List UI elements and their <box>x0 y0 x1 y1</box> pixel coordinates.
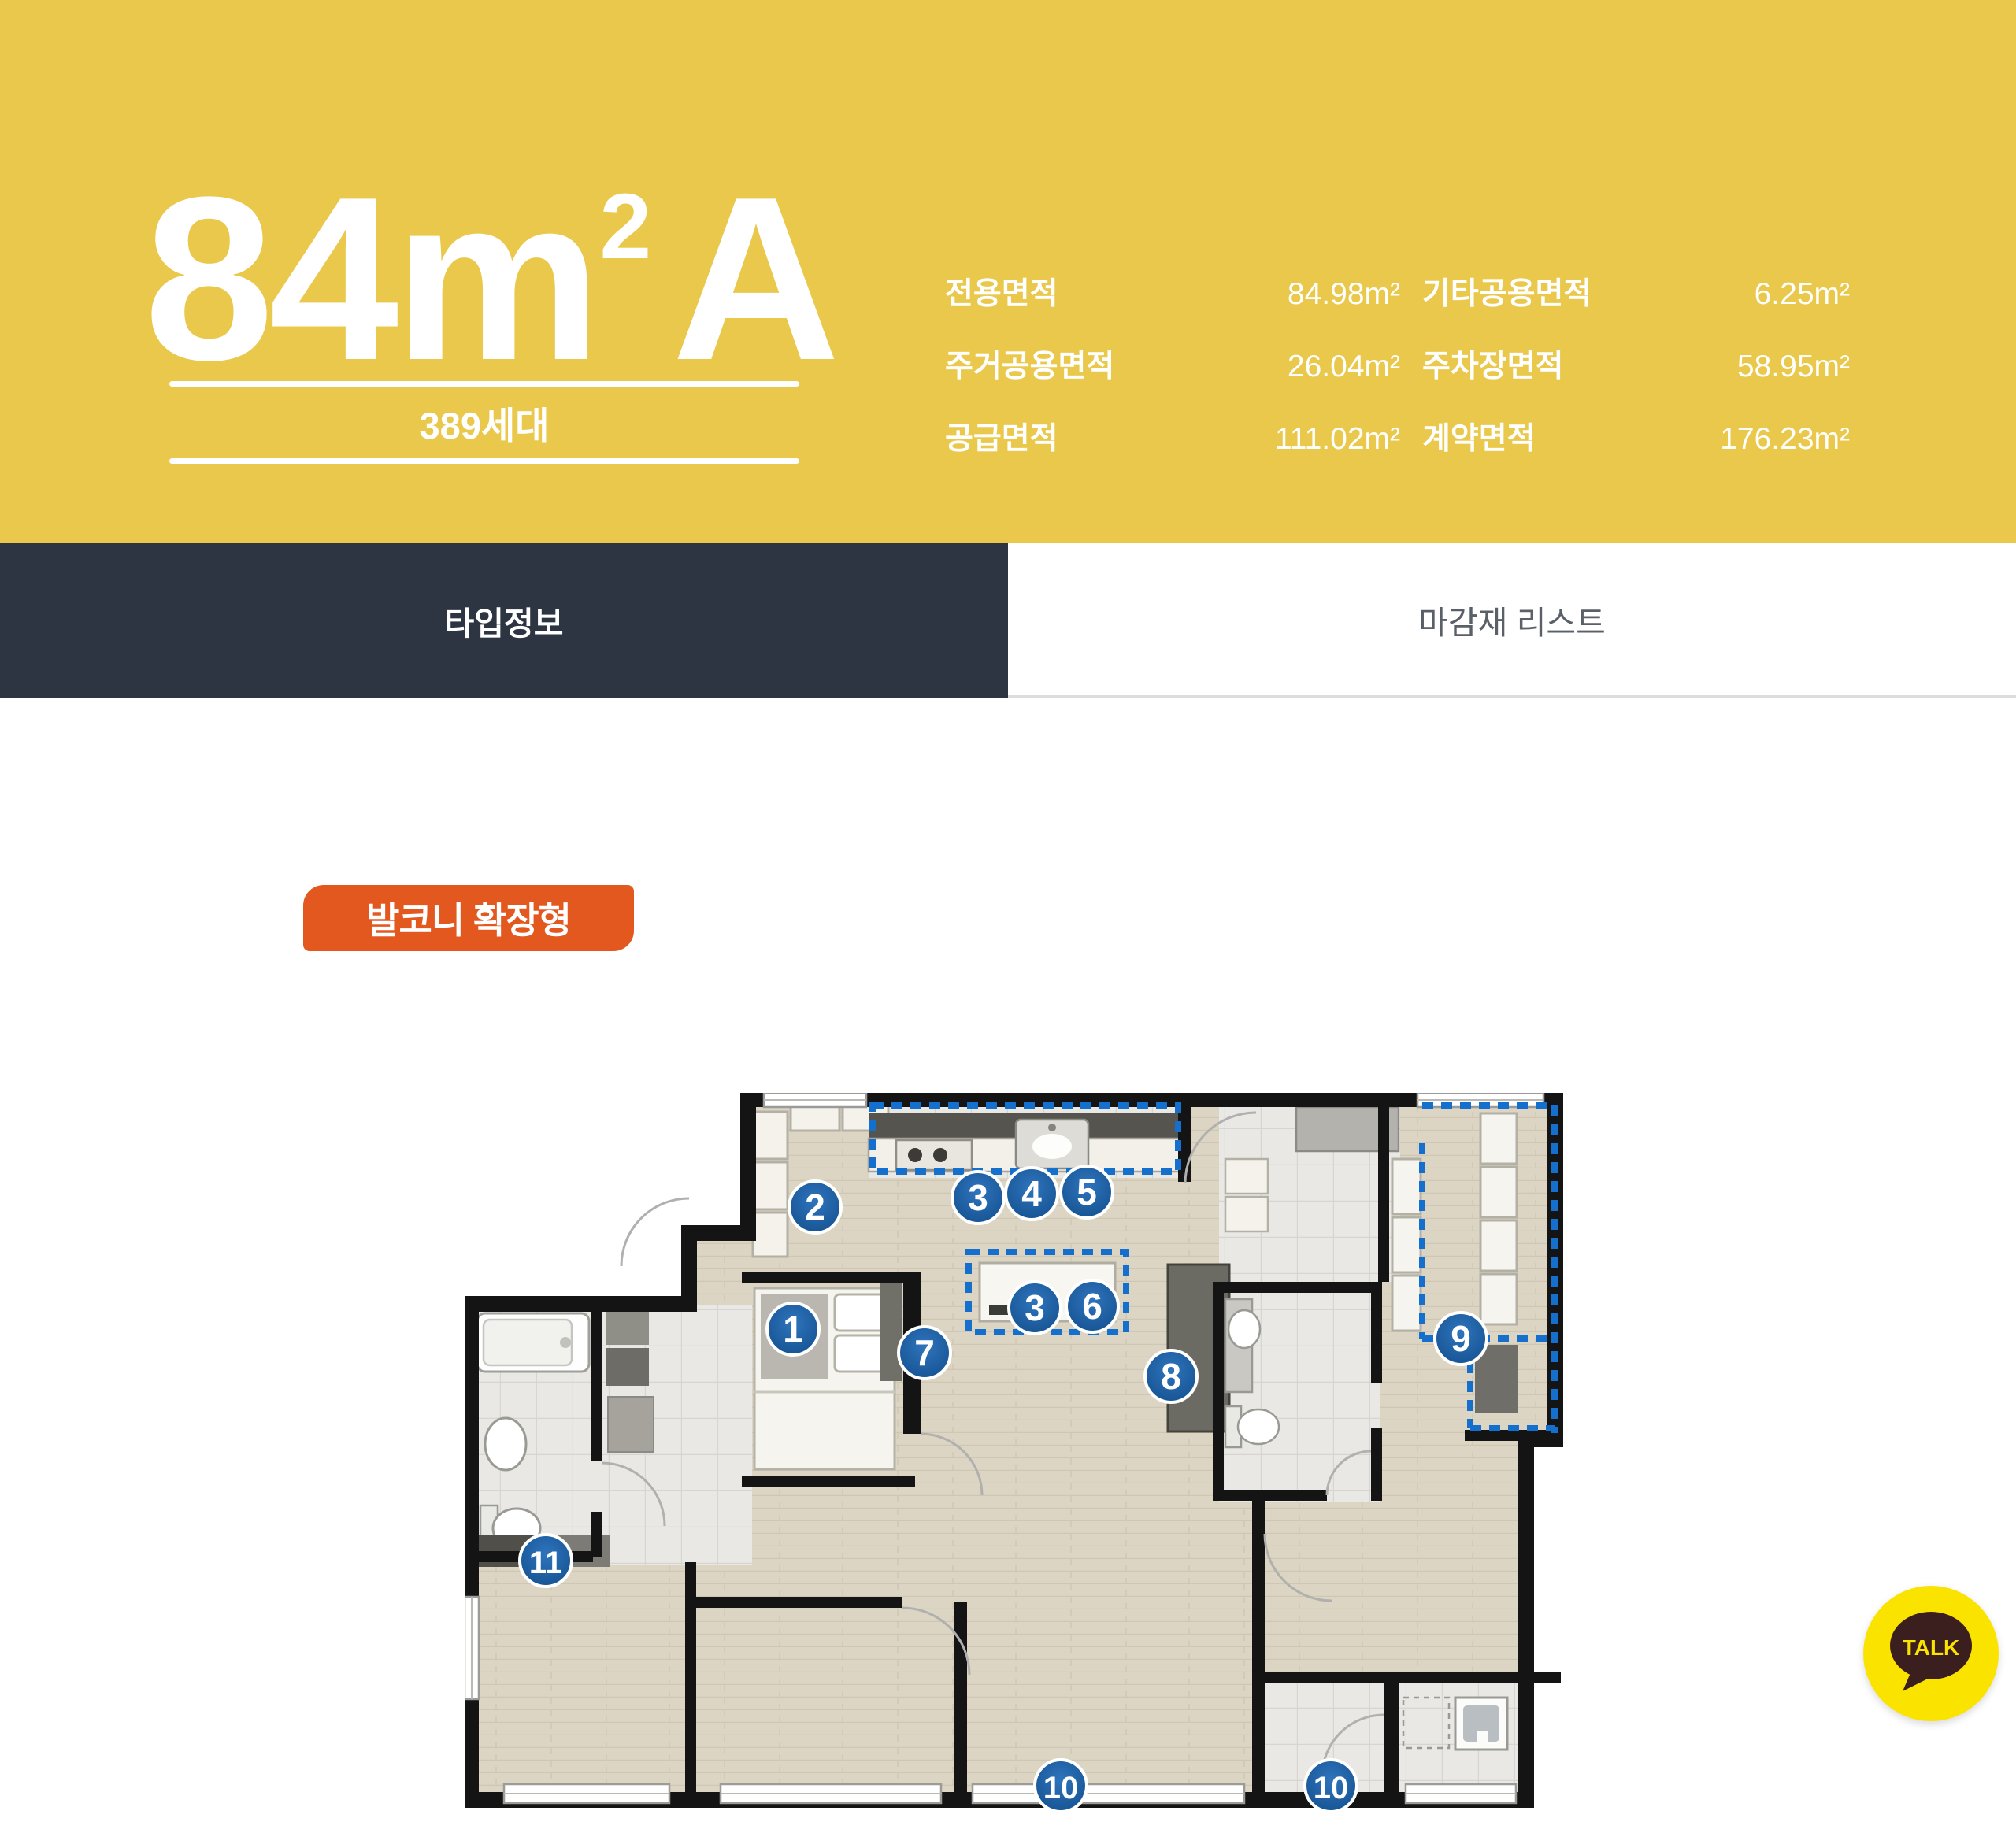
svg-text:1: 1 <box>783 1309 803 1350</box>
svg-text:2: 2 <box>805 1187 825 1228</box>
area-label: 기타공용면적 <box>1422 277 1619 312</box>
floorplan-marker-6: 6 <box>1066 1280 1118 1332</box>
tab-bar: 타입정보 마감재 리스트 <box>0 543 2016 698</box>
svg-text:10: 10 <box>1314 1771 1349 1805</box>
svg-text:7: 7 <box>914 1332 935 1373</box>
floorplan-marker-11: 11 <box>520 1535 572 1587</box>
area-label: 주차장면적 <box>1422 350 1619 384</box>
floorplan-marker-4: 4 <box>1006 1168 1058 1220</box>
floorplan-marker-1: 1 <box>767 1303 819 1355</box>
type-title-suffix: A <box>672 148 840 409</box>
floorplan-marker-10: 10 <box>1035 1760 1087 1812</box>
tab-finish-list[interactable]: 마감재 리스트 <box>1008 543 2016 698</box>
bedroom-cabinet <box>880 1280 902 1381</box>
floorplan-marker-9: 9 <box>1435 1313 1487 1365</box>
type-title-main: 84m <box>144 148 596 409</box>
type-header-banner: 84m2A 389세대 전용면적84.98m²기타공용면적6.25m²주거공용면… <box>0 0 2016 543</box>
svg-text:10: 10 <box>1043 1771 1079 1805</box>
kitchen-counter <box>869 1113 1180 1172</box>
svg-text:8: 8 <box>1161 1356 1181 1397</box>
area-grid: 전용면적84.98m²기타공용면적6.25m²주거공용면적26.04m²주차장면… <box>945 277 1850 457</box>
svg-text:11: 11 <box>529 1546 562 1580</box>
kakaotalk-icon: TALK <box>1863 1586 1999 1721</box>
type-title-superscript: 2 <box>600 175 652 279</box>
area-value: 176.23m² <box>1641 422 1850 457</box>
svg-text:3: 3 <box>968 1177 988 1218</box>
area-value: 58.95m² <box>1641 350 1850 384</box>
svg-text:3: 3 <box>1025 1287 1045 1328</box>
kakaotalk-button[interactable]: TALK <box>1863 1586 1999 1721</box>
area-label: 계약면적 <box>1422 422 1619 457</box>
entry-closets <box>606 1304 654 1452</box>
divider-line-bottom <box>169 458 799 464</box>
divider-line-top <box>169 381 799 387</box>
area-label: 공급면적 <box>945 422 1138 457</box>
floorplan-marker-3: 3 <box>1009 1282 1061 1334</box>
kakaotalk-label: TALK <box>1903 1635 1960 1660</box>
floorplan-marker-10: 10 <box>1305 1760 1357 1812</box>
floorplan-marker-7: 7 <box>899 1327 951 1379</box>
area-value: 84.98m² <box>1160 277 1400 312</box>
area-label: 전용면적 <box>945 277 1138 312</box>
svg-text:4: 4 <box>1021 1173 1042 1214</box>
svg-text:5: 5 <box>1077 1172 1097 1213</box>
svg-text:6: 6 <box>1082 1286 1102 1327</box>
area-value: 111.02m² <box>1160 422 1400 457</box>
type-title: 84m2A <box>118 162 866 395</box>
unit-count: 389세대 <box>169 398 799 454</box>
floorplan-marker-3: 3 <box>952 1172 1004 1224</box>
balcony-extension-badge: 발코니 확장형 <box>303 885 634 951</box>
tab-type-info[interactable]: 타입정보 <box>0 543 1008 698</box>
svg-text:9: 9 <box>1451 1318 1471 1359</box>
floorplan: 1234536789101011 <box>465 1093 1567 1833</box>
area-label: 주거공용면적 <box>945 350 1138 384</box>
area-value: 26.04m² <box>1160 350 1400 384</box>
floorplan-marker-5: 5 <box>1061 1166 1113 1218</box>
floorplan-marker-2: 2 <box>789 1181 841 1233</box>
floorplan-marker-8: 8 <box>1145 1350 1197 1402</box>
area-value: 6.25m² <box>1641 277 1850 312</box>
